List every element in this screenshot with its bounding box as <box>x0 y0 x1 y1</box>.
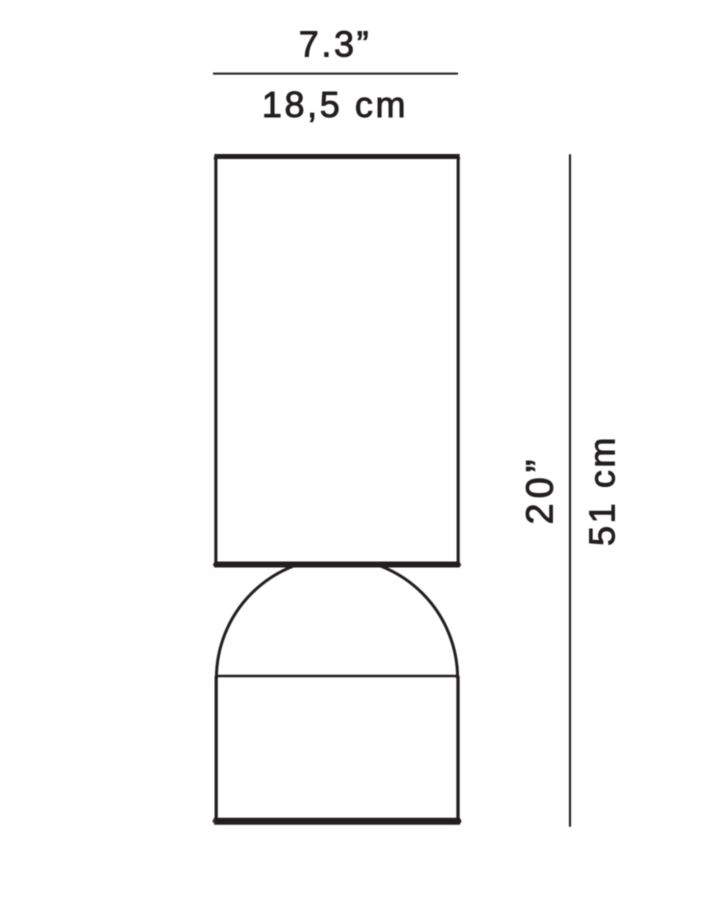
svg-text:20”: 20” <box>520 455 562 525</box>
svg-text:7.3”: 7.3” <box>299 24 371 65</box>
svg-text:18,5 cm: 18,5 cm <box>262 84 408 125</box>
svg-text:51 cm: 51 cm <box>582 435 623 546</box>
